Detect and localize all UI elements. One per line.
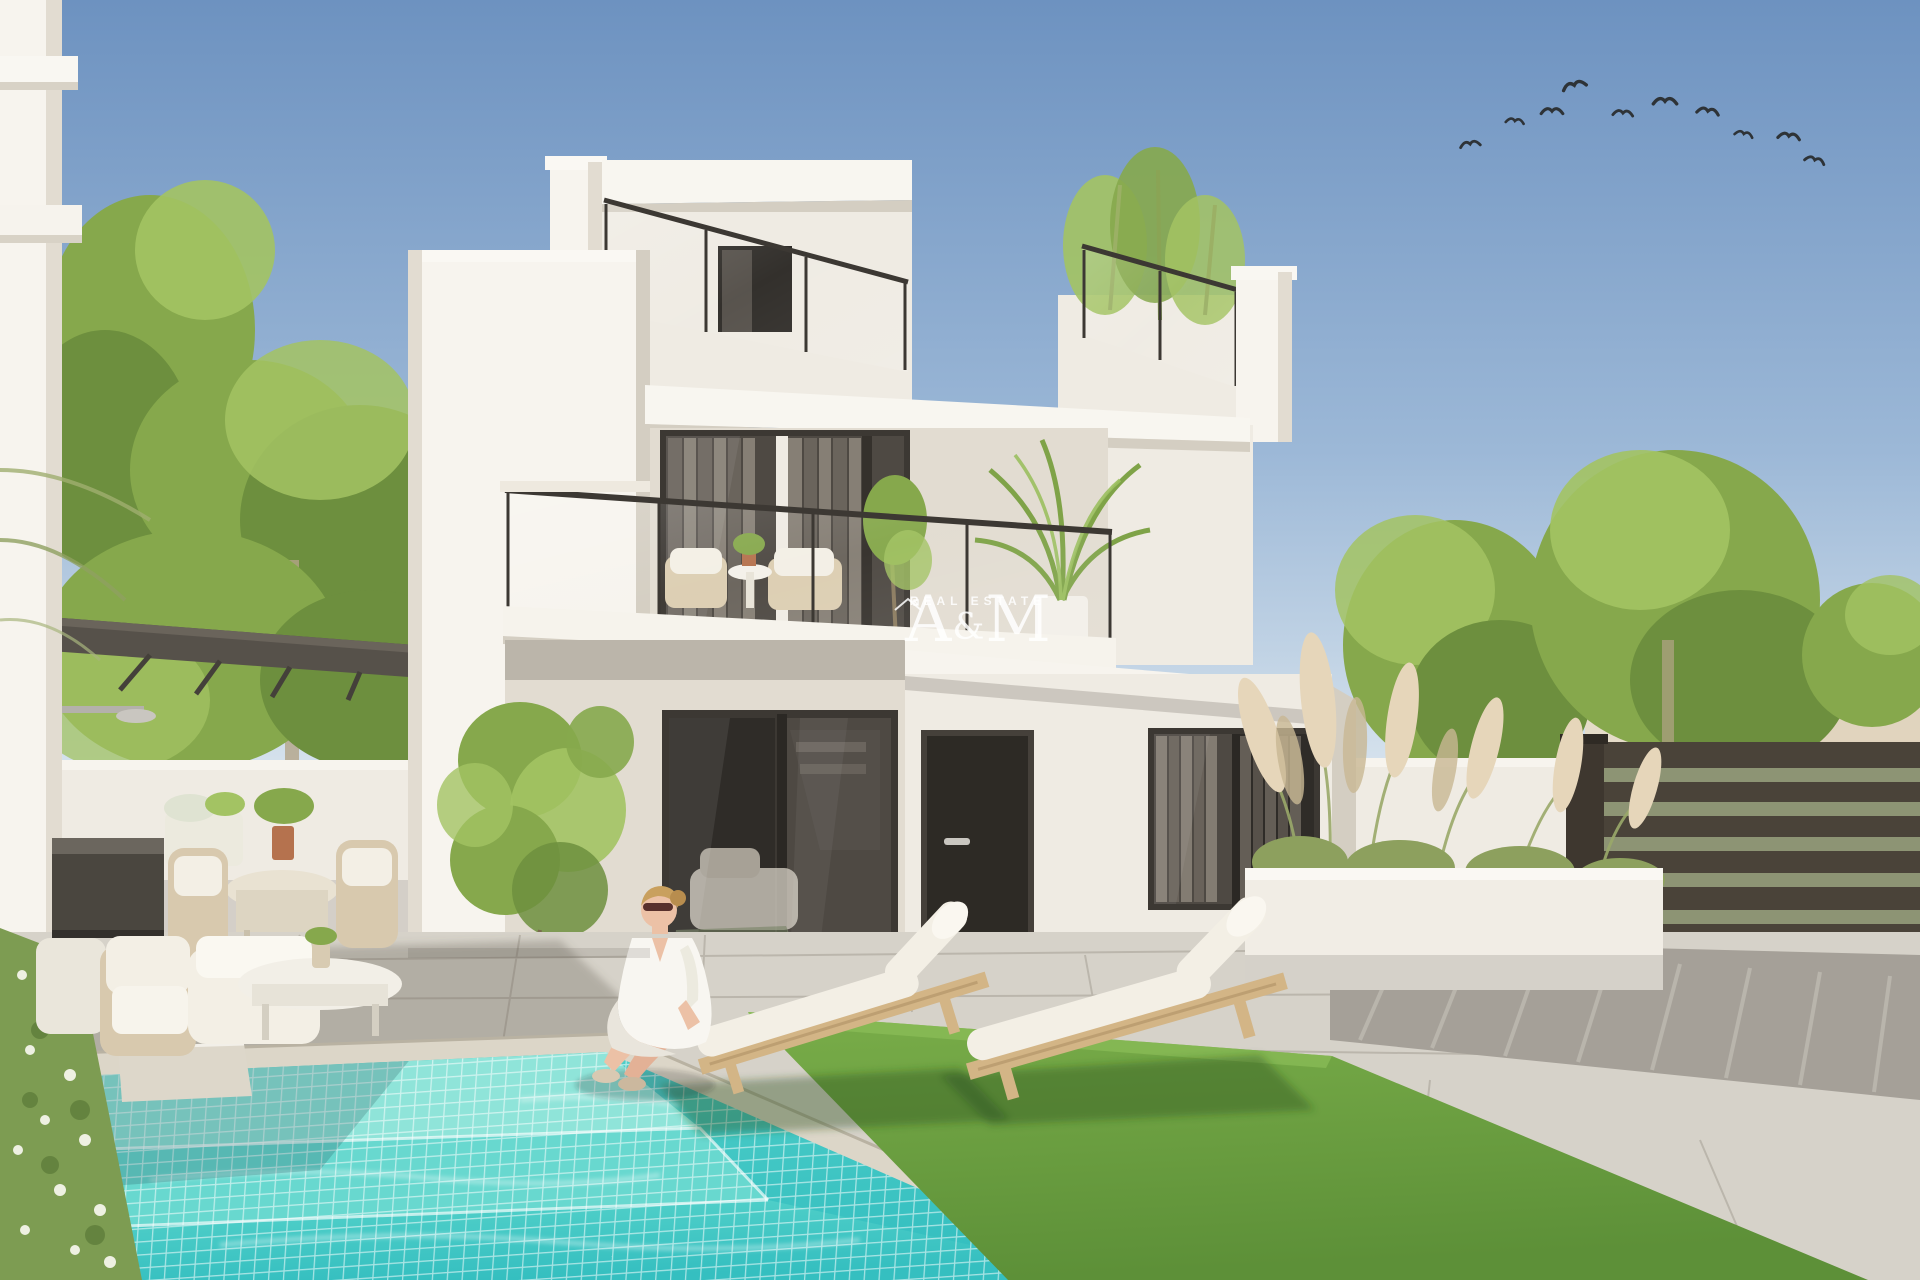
left-sliding-doors (662, 710, 898, 966)
villa (408, 147, 1356, 966)
storage-bench (52, 838, 164, 938)
right-mid-facade (1105, 425, 1253, 665)
rendered-photo: REAL ESTATE A & M (0, 0, 1920, 1280)
ambient (408, 948, 650, 958)
